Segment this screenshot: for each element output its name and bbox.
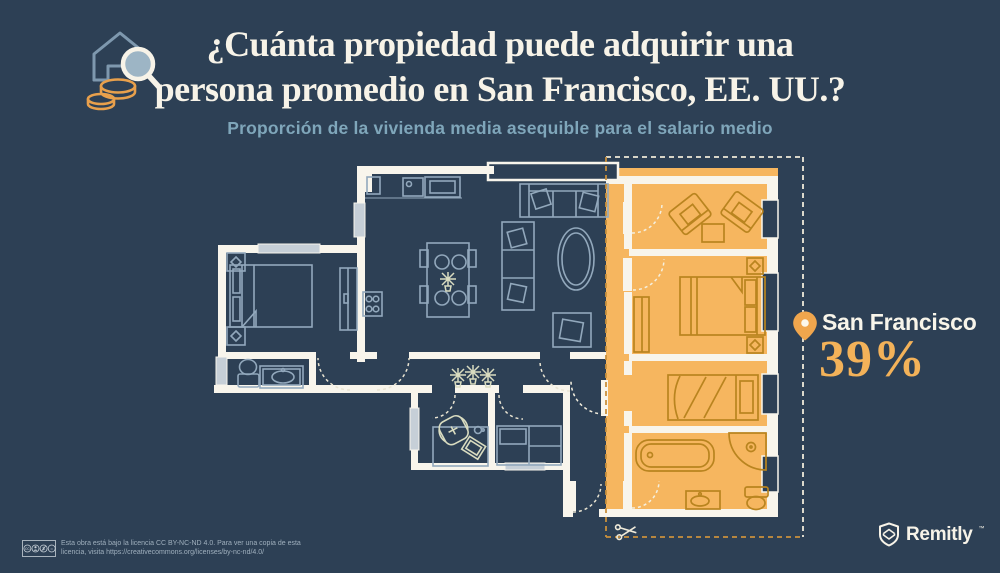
balcony-wall <box>488 163 618 180</box>
license-line-2: licencia, visita https://creativecommons… <box>61 549 301 558</box>
creative-commons-badge: cc $ = <box>22 540 56 557</box>
apartment-kept-area <box>214 163 618 517</box>
wardrobe <box>340 268 357 330</box>
remitly-shield-icon <box>878 522 900 547</box>
sofa <box>520 184 608 217</box>
toilet <box>238 360 259 388</box>
brand-name: Remitly <box>906 524 973 546</box>
daybed <box>497 426 561 465</box>
kitchen-counter <box>365 177 462 198</box>
brand-logo: Remitly ™ <box>878 522 985 547</box>
trademark-symbol: ™ <box>979 526 985 532</box>
sofa-2 <box>502 222 534 310</box>
infographic-canvas: ¿Cuánta propiedad puede adquirir una per… <box>0 0 1000 573</box>
kept-area-door-arcs <box>318 358 601 512</box>
laptop <box>462 436 486 459</box>
office-items <box>435 412 486 459</box>
office-chair <box>435 412 472 448</box>
license-text: Esta obra está bajo la licencia CC BY-NC… <box>61 540 301 557</box>
rug <box>558 228 594 290</box>
double-bed <box>230 265 312 327</box>
location-pin-icon <box>793 312 817 341</box>
svg-text:=: = <box>50 546 53 551</box>
armchair <box>553 313 591 347</box>
cc-by-icon <box>32 545 39 552</box>
svg-text:cc: cc <box>25 546 30 551</box>
floor-plan <box>0 0 1000 573</box>
kept-area-windows <box>216 203 545 470</box>
license-line-1: Esta obra está bajo la licencia CC BY-NC… <box>61 540 301 549</box>
apartment-cut-area <box>571 168 778 517</box>
vanity-sink <box>260 366 303 388</box>
cooktop <box>363 292 382 316</box>
nightstand <box>227 327 245 345</box>
callout-percentage: 39% <box>819 330 926 389</box>
